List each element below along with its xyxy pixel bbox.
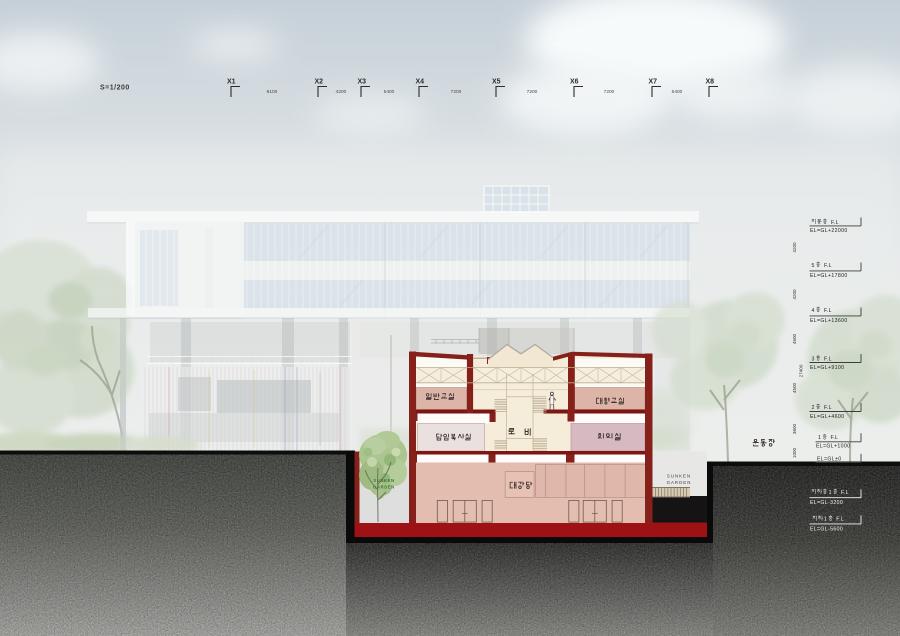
svg-text:EL=GL+17800: EL=GL+17800 (810, 273, 848, 279)
svg-text:4500: 4500 (792, 333, 797, 344)
svg-text:4500: 4500 (792, 382, 797, 393)
svg-text:3600: 3600 (792, 423, 797, 434)
svg-text:X3: X3 (358, 79, 367, 86)
svg-text:6400: 6400 (672, 89, 683, 95)
svg-text:EL=GL+13600: EL=GL+13600 (810, 318, 848, 324)
svg-text:5: 5 (812, 263, 815, 269)
svg-text:EL=GL-3200: EL=GL-3200 (810, 500, 843, 506)
svg-text:5400: 5400 (384, 89, 395, 95)
svg-text:EL=GL+22000: EL=GL+22000 (810, 228, 848, 234)
svg-text:F.L: F.L (831, 435, 839, 441)
svg-text:S=1/200: S=1/200 (100, 85, 130, 92)
svg-text:4: 4 (812, 308, 815, 314)
svg-text:1000: 1000 (792, 447, 797, 458)
svg-text:F.L: F.L (824, 263, 832, 269)
svg-text:EL=GL+1000: EL=GL+1000 (816, 444, 850, 450)
svg-text:X5: X5 (492, 79, 501, 86)
svg-text:X8: X8 (706, 79, 715, 86)
svg-text:X2: X2 (315, 79, 324, 86)
svg-text:EL=GL+9100: EL=GL+9100 (810, 365, 844, 371)
svg-text:GARDEN: GARDEN (373, 485, 395, 490)
svg-text:EL=GL±0: EL=GL±0 (817, 457, 841, 463)
svg-text:7200: 7200 (527, 89, 538, 95)
svg-text:EL=GL+4600: EL=GL+4600 (810, 414, 844, 420)
svg-text:F.L: F.L (824, 405, 832, 411)
svg-text:SUNKEN: SUNKEN (667, 474, 691, 479)
svg-text:3200: 3200 (792, 470, 797, 481)
svg-text:27400: 27400 (799, 364, 804, 377)
svg-text:4200: 4200 (336, 89, 347, 95)
svg-text:1: 1 (824, 517, 827, 523)
svg-text:GARDEN: GARDEN (667, 480, 692, 485)
svg-text:2: 2 (812, 405, 815, 411)
svg-text:X7: X7 (649, 79, 658, 86)
svg-text:F.L: F.L (831, 220, 839, 226)
svg-text:SUNKEN: SUNKEN (373, 478, 394, 483)
svg-text:4200: 4200 (792, 242, 797, 253)
svg-text:1: 1 (829, 490, 832, 496)
svg-text:F.L: F.L (836, 517, 844, 523)
svg-text:F.L: F.L (824, 356, 832, 362)
svg-text:X4: X4 (416, 79, 425, 86)
svg-text:F.L: F.L (841, 490, 849, 496)
svg-text:2400: 2400 (792, 503, 797, 514)
svg-text:EL=GL-5600: EL=GL-5600 (810, 526, 843, 532)
svg-text:X1: X1 (227, 79, 236, 86)
svg-text:4200: 4200 (792, 289, 797, 300)
svg-text:7200: 7200 (451, 89, 462, 95)
svg-text:F.L: F.L (824, 308, 832, 314)
svg-text:7200: 7200 (604, 89, 615, 95)
svg-text:3: 3 (812, 356, 815, 362)
svg-text:8100: 8100 (267, 89, 278, 95)
svg-text:X6: X6 (570, 79, 579, 86)
svg-text:1: 1 (818, 435, 821, 441)
